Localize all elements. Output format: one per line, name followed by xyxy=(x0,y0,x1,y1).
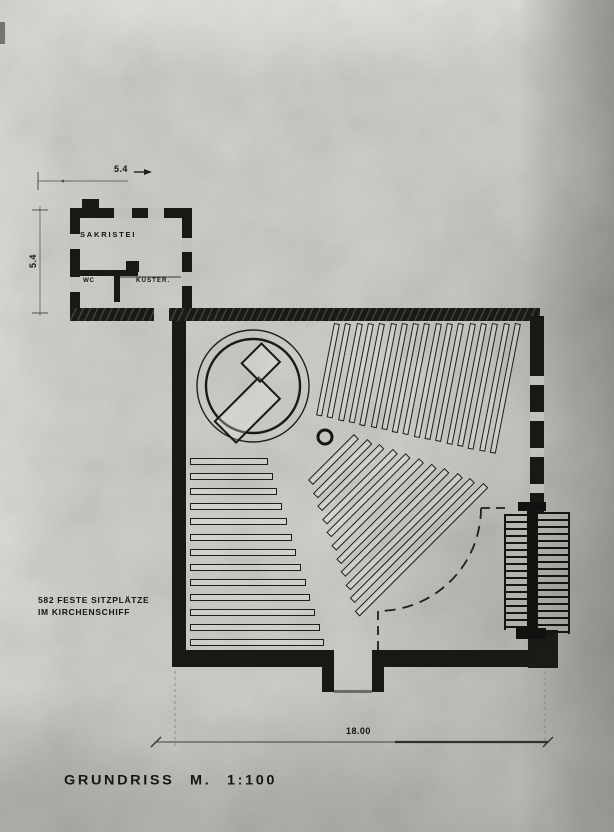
plan-linework xyxy=(0,0,614,832)
dim-dot xyxy=(62,180,65,183)
gallery-dashed-arc xyxy=(378,508,481,611)
dim-arrow-head xyxy=(144,169,152,175)
room-label-wc: WC xyxy=(83,277,95,284)
font-circle xyxy=(318,430,332,444)
seat-count-note-line2: IM KIRCHENSCHIFF xyxy=(38,608,130,617)
dimension-bottom-label: 18.00 xyxy=(346,727,371,737)
drawing-title: GRUNDRISS M. 1:100 xyxy=(64,773,277,788)
dimension-top-label: 5.4 xyxy=(114,165,128,175)
dimension-left-label: 5.4 xyxy=(29,254,39,268)
room-label-sacristy: SAKRISTEI xyxy=(80,231,136,239)
seat-count-note-line1: 582 FESTE SITZPLÄTZE xyxy=(38,596,149,605)
room-label-sexton: KÜSTER. xyxy=(136,277,170,284)
scanned-floor-plan-photo: SAKRISTEI WC KÜSTER. 582 FESTE SITZPLÄTZ… xyxy=(0,0,614,832)
